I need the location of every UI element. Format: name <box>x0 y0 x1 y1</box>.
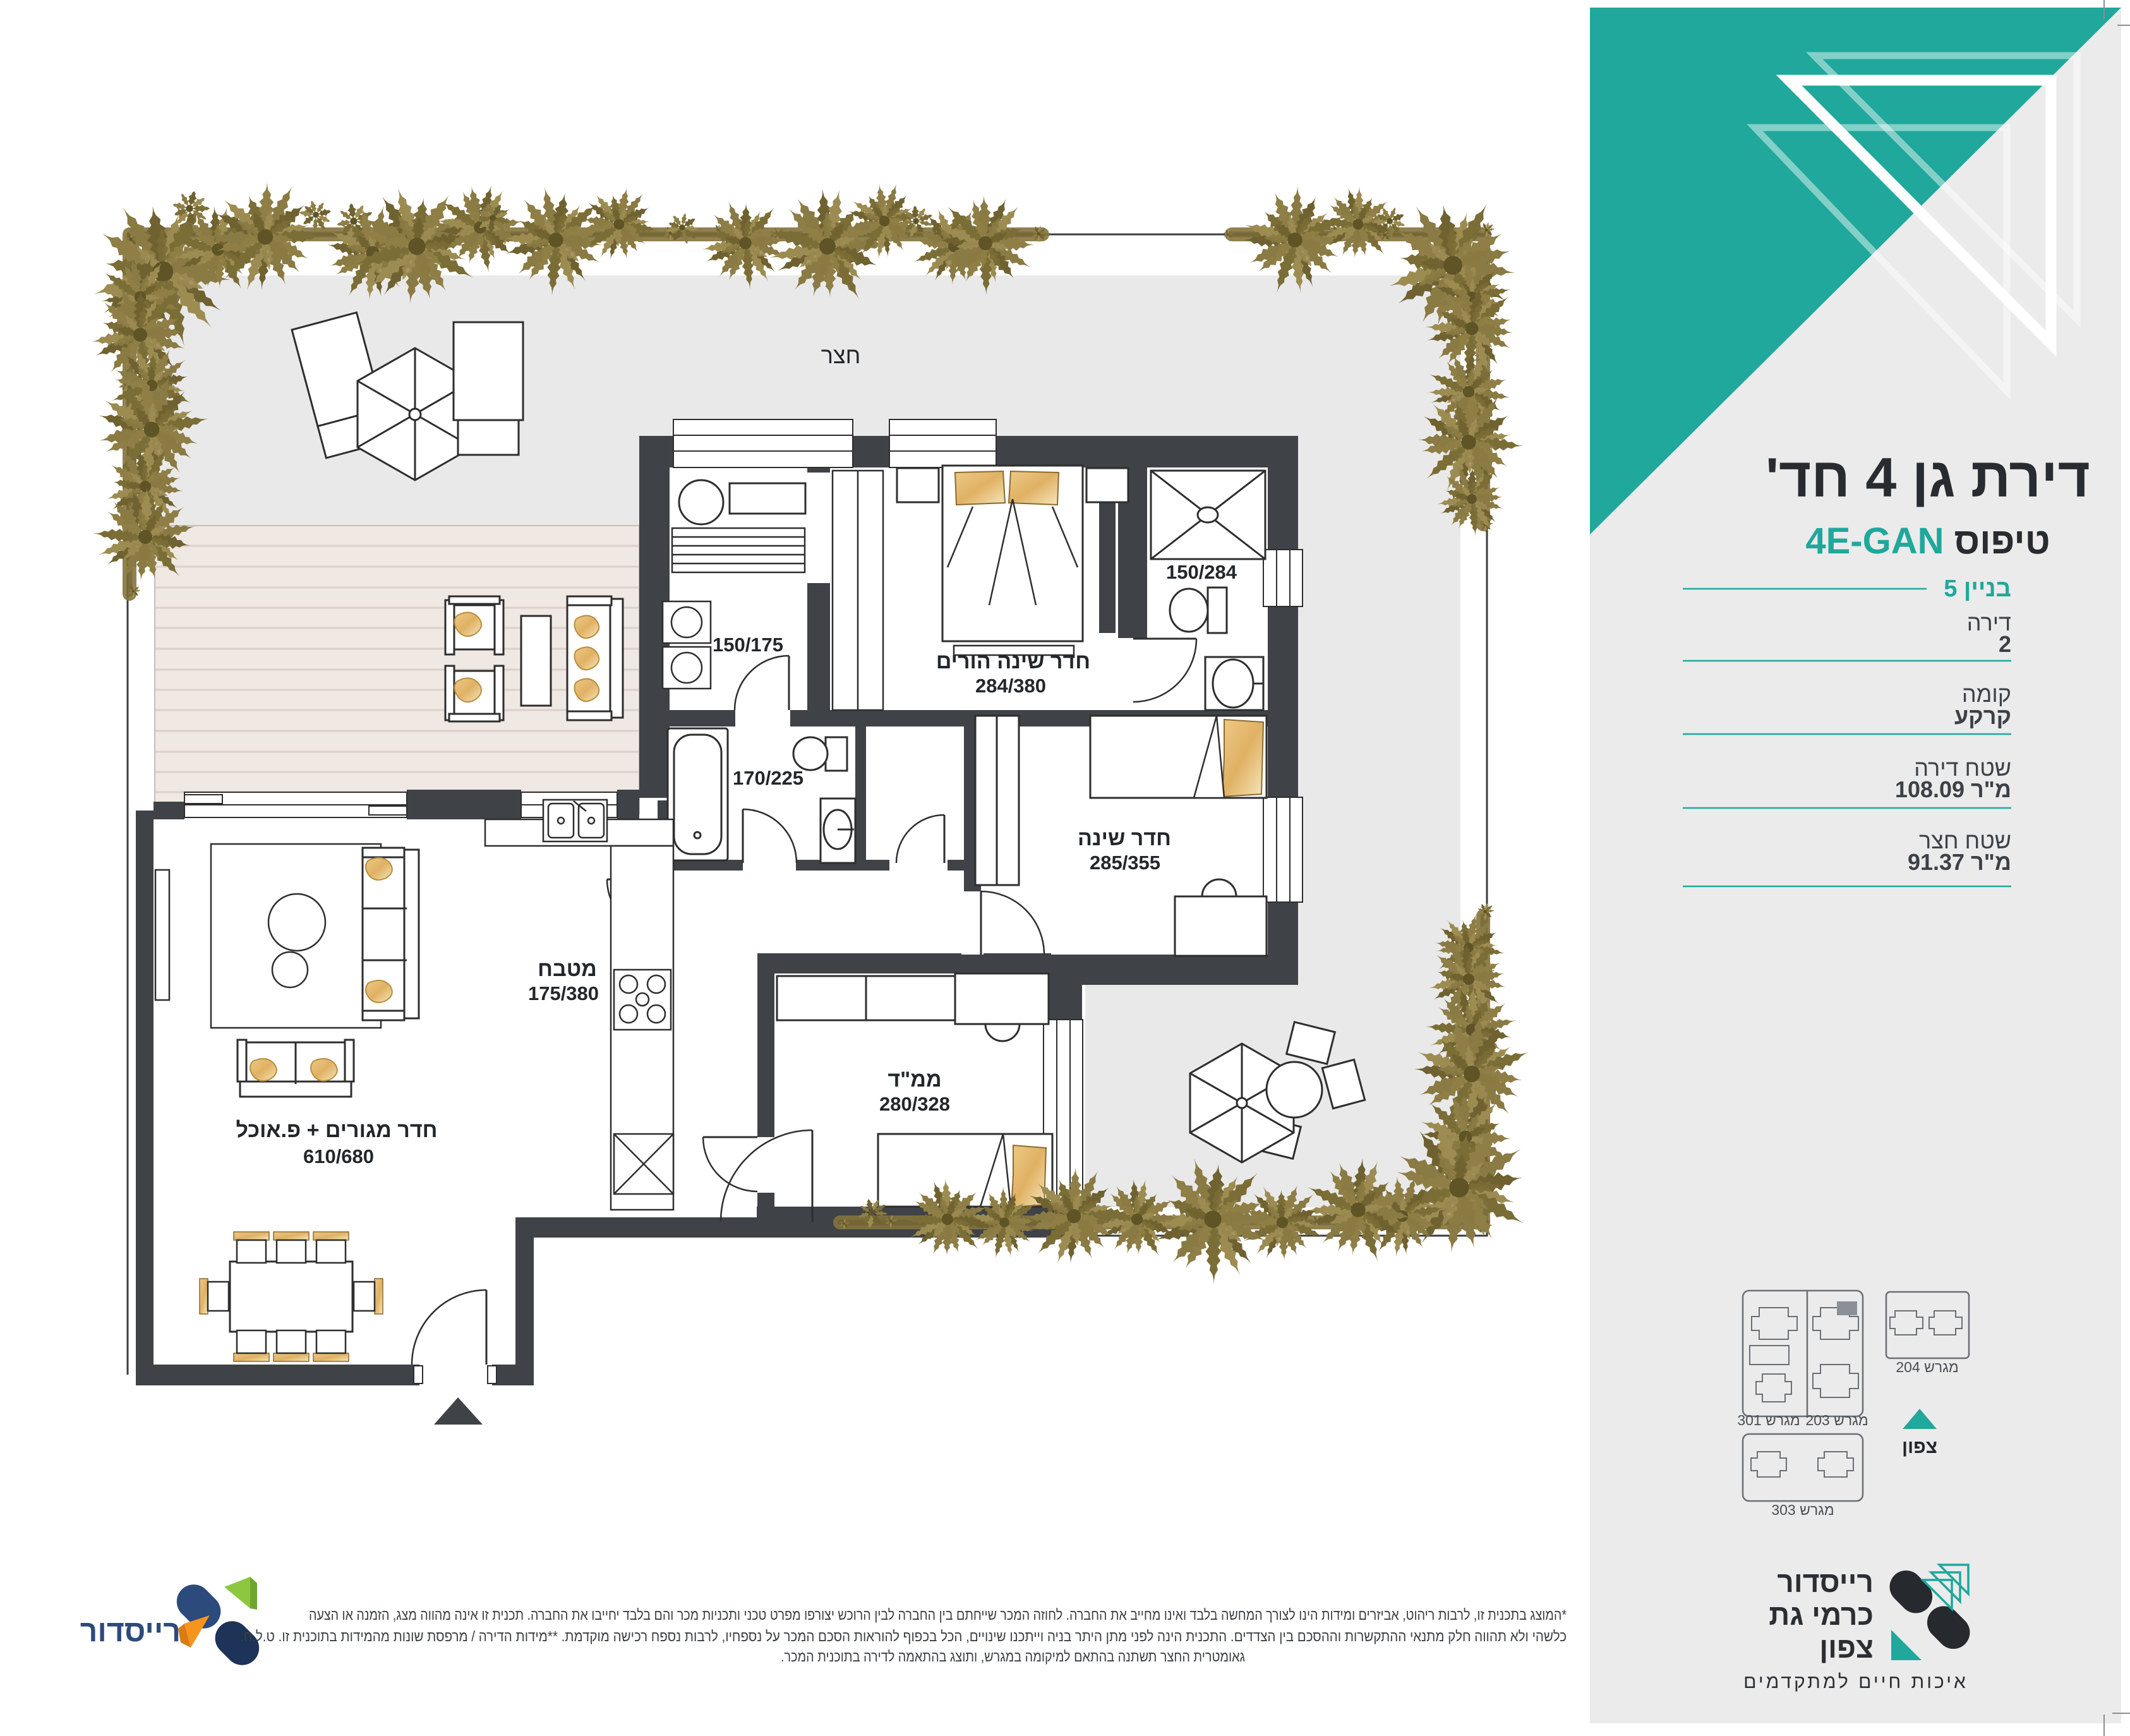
svg-text:2: 2 <box>1999 631 2011 657</box>
svg-text:285/355: 285/355 <box>1090 852 1160 874</box>
svg-text:כלשהי ולא תהווה חלק מתנאי ההתק: כלשהי ולא תהווה חלק מתנאי ההתקשרות וההסכ… <box>240 1628 1567 1644</box>
svg-text:150/284: 150/284 <box>1166 561 1237 583</box>
svg-text:קרקע: קרקע <box>1954 703 2011 729</box>
svg-text:280/328: 280/328 <box>879 1093 950 1115</box>
svg-text:כרמי גת: כרמי גת <box>1769 1598 1874 1631</box>
svg-text:91.37 מ"ר: 91.37 מ"ר <box>1908 849 2011 875</box>
svg-text:175/380: 175/380 <box>528 982 599 1004</box>
svg-text:איכות חיים למתקדמים: איכות חיים למתקדמים <box>1743 1672 1968 1692</box>
svg-text:רייסדור: רייסדור <box>80 1615 181 1648</box>
svg-text:חדר שינה: חדר שינה <box>1078 826 1171 850</box>
svg-text:מגרש 301: מגרש 301 <box>1737 1412 1800 1428</box>
svg-text:*המוצג בתכנית זו, לרבות ריהוט,: *המוצג בתכנית זו, לרבות ריהוט, אביזרים ו… <box>309 1606 1567 1623</box>
svg-text:150/175: 150/175 <box>713 634 783 656</box>
svg-text:דירת גן 4 חד': דירת גן 4 חד' <box>1766 446 2090 509</box>
svg-text:צפון: צפון <box>1902 1437 1937 1457</box>
svg-text:284/380: 284/380 <box>975 675 1046 697</box>
svg-text:ממ"ד: ממ"ד <box>887 1068 941 1092</box>
svg-text:מטבח: מטבח <box>538 957 597 981</box>
svg-text:מגרש 204: מגרש 204 <box>1896 1359 1958 1375</box>
svg-text:108.09 מ"ר: 108.09 מ"ר <box>1895 776 2011 802</box>
svg-text:610/680: 610/680 <box>303 1145 374 1167</box>
svg-text:חדר מגורים + פ.אוכל: חדר מגורים + פ.אוכל <box>236 1118 438 1142</box>
svg-text:חצר: חצר <box>821 342 861 368</box>
svg-text:מגרש 203: מגרש 203 <box>1805 1412 1868 1428</box>
svg-text:מגרש 303: מגרש 303 <box>1771 1502 1834 1518</box>
svg-text:צפון: צפון <box>1819 1631 1874 1664</box>
svg-text:טיפוס 4E-GAN: טיפוס 4E-GAN <box>1805 521 2050 562</box>
svg-text:בניין 5: בניין 5 <box>1944 576 2011 602</box>
svg-text:חדר שינה הורים: חדר שינה הורים <box>936 649 1090 673</box>
svg-text:רייסדור: רייסדור <box>1777 1565 1874 1598</box>
svg-text:גאומטרית החצר תשתנה בהתאם למיק: גאומטרית החצר תשתנה בהתאם למיקומה במגרש,… <box>781 1648 1245 1665</box>
svg-text:170/225: 170/225 <box>733 767 803 789</box>
